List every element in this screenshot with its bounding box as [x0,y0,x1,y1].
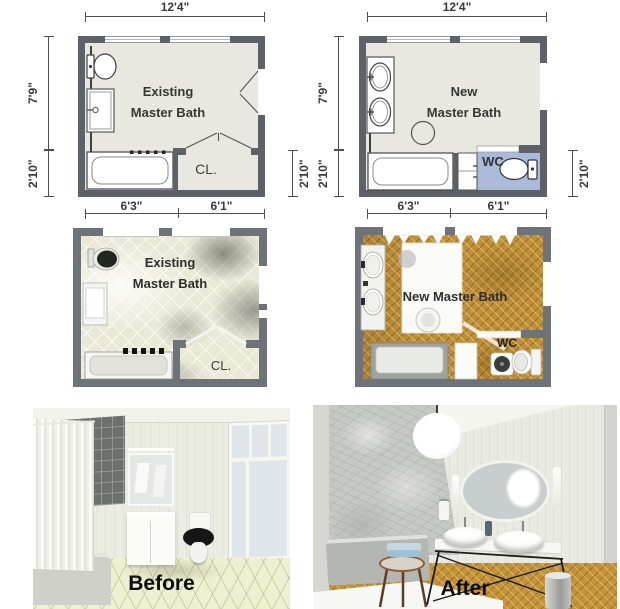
wc-basin-3d-icon [491,353,513,375]
vessel-sink [443,527,487,547]
window-main-glass [232,460,287,558]
room-title-existing-2d: Existing Master Bath [118,82,218,124]
room-title-line1: Existing [110,253,230,274]
dim-line-right-lower-existing [292,150,293,197]
dim-line-top-existing [85,16,265,17]
oval-mirror [460,460,550,522]
stool-icon [412,122,435,145]
partition-wall [453,153,458,190]
vanity-cabinet [127,512,175,565]
dim-line-top-new [367,16,547,17]
dim-label-right-lower-new: 2'10" [577,150,593,197]
window-mullion [249,425,252,457]
window [229,421,290,565]
dim-label-bottom-right-existing: 6'1" [178,199,265,213]
cabinet-3d-icon [455,343,477,379]
dim-label-left-upper-new: 7'9" [316,36,332,150]
soap-bottle [485,521,492,536]
closet-label-3d: CL. [199,358,243,373]
room-title-line2: Master Bath [118,103,218,124]
window-transom-glass [232,424,287,458]
dim-label-left-lower-existing: 2'10" [26,150,42,197]
dim-label-right-lower-existing: 2'10" [297,150,313,197]
before-after-bathroom-collage: 12'4" 7'9" 2'10" 2'10" [0,0,620,609]
door-opening [540,63,547,110]
entry-door-icon [240,69,265,115]
floorplan-2d-existing: Existing Master Bath CL. [78,36,265,197]
bathtub-icon [87,151,173,190]
double-vanity-icon [367,57,394,133]
vessel-sink [494,531,544,553]
dim-line-left-lower-new [338,150,339,197]
vanity-door-split [150,521,151,563]
double-vanity-3d-icon [361,245,385,330]
wc-label-2d: WC [475,154,511,169]
wc-toilet-3d-icon [512,349,541,375]
render-before: Before [33,408,290,609]
door-opening [259,310,267,318]
dim-label-bottom-left-existing: 6'3" [85,199,178,213]
door-opening [543,262,551,306]
floorplan-3d-existing: Existing Master Bath CL. [73,228,267,387]
dim-label-left-upper-existing: 7'9" [26,36,42,150]
dim-line-left-lower-existing [48,150,49,197]
window-mullion [268,425,271,457]
toilet-icon [87,54,116,79]
mirror-reflection [134,463,149,493]
room-title-new-3d: New Master Bath [385,287,525,308]
room-title-existing-3d: Existing Master Bath [110,253,230,295]
window-mullion [246,461,249,557]
dim-line-bottom-existing [85,213,265,214]
render-after: After [313,405,617,609]
closet-double-door-icon [186,133,251,148]
dim-label-bottom-left-new: 6'3" [367,199,450,213]
dim-line-left-upper-existing [48,36,49,150]
room-title-line1: Existing [118,82,218,103]
after-label: After [313,577,617,601]
pendant-globe-light [413,413,461,459]
bathtub-3d-icon [85,348,172,379]
wc-partition [477,145,540,153]
floorplan-3d-new: New Master Bath WC [355,227,551,387]
shower-curtain [33,419,94,571]
closet-label-2d: CL. [178,161,234,177]
bathtub-icon [368,153,453,190]
dim-label-width-new: 12'4" [367,0,547,14]
room-title-line1: New Master Bath [385,287,525,308]
toilet [183,512,215,564]
dim-label-width-existing: 12'4" [85,0,265,14]
toilet-base [190,542,207,563]
wall-sconce-light [452,475,459,511]
floorplan-2d-new: New Master Bath WC [359,36,547,197]
wc-label-3d: WC [489,336,525,350]
hand-towel [439,501,449,520]
mirror-cabinet [128,453,174,506]
bathtub-3d-icon [371,343,448,379]
vanity-sink-icon [87,89,114,132]
room-title-line1: New [409,82,519,103]
closet-double-door-3d-icon [186,327,246,344]
mirror-light-bar [128,448,174,451]
dim-line-right-lower-new [572,150,573,197]
before-label: Before [33,572,290,596]
door-opening [259,266,267,304]
room-title-line2: Master Bath [110,274,230,295]
folded-towel [389,550,419,557]
room-title-line2: Master Bath [409,103,519,124]
dim-line-bottom-new [367,213,547,214]
wall-sconce-light [553,467,561,509]
dim-line-left-upper-new [338,36,339,150]
mirror-reflection [152,465,166,497]
vanity-3d-icon [83,283,107,325]
dim-label-left-lower-new: 2'10" [316,150,332,197]
room-title-new-2d: New Master Bath [409,82,519,124]
dim-label-bottom-right-new: 6'1" [450,199,547,213]
stool-top [379,555,425,572]
